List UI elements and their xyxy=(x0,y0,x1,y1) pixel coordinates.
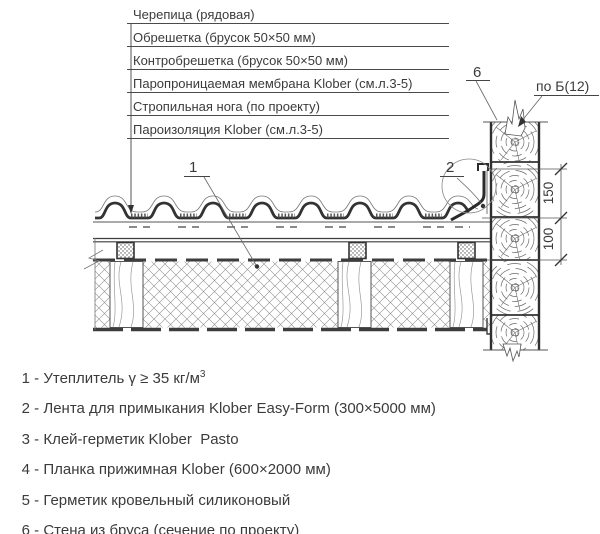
dimension-150: 150 xyxy=(541,182,556,205)
callout-2-label: 2 xyxy=(446,159,454,176)
roof-section xyxy=(84,196,492,334)
arrow-down-icon xyxy=(128,205,134,214)
layer-label-rafter: Стропильная нога (по проекту) xyxy=(127,99,449,116)
callout-1-insulation: 1 xyxy=(184,159,259,269)
layer-label-membrane: Паропроницаемая мембрана Klober (см.л.3-… xyxy=(127,76,449,93)
wall-break-mark-bottom xyxy=(503,344,521,361)
legend-item-6: 6 - Стена из бруса (сечение по проекту) xyxy=(5,504,299,534)
technical-drawing-page: 1 2 6 по Б(12) xyxy=(0,0,600,534)
callout-6-label: 6 xyxy=(473,64,481,81)
leader-dot xyxy=(481,204,485,208)
counter-batten-blocks xyxy=(117,243,475,259)
legend-item-1-sup: 3 xyxy=(200,369,206,380)
tile-upper-contour xyxy=(95,196,478,212)
layer-label-tiles: Черепица (рядовая) xyxy=(127,7,449,24)
log-wall xyxy=(483,100,548,361)
callout-section-view: по Б(12) xyxy=(518,78,599,127)
rafter xyxy=(450,262,483,328)
leader-dot xyxy=(255,264,259,268)
callout-6-wall: 6 xyxy=(466,64,497,120)
layer-label-battens: Обрешетка (брусок 50×50 мм) xyxy=(127,30,449,47)
section-view-label: по Б(12) xyxy=(536,78,589,94)
callout-1-label: 1 xyxy=(189,159,197,176)
legend-item-6-text: 6 - Стена из бруса (сечение по проекту) xyxy=(22,522,300,534)
rafter xyxy=(110,262,143,328)
layer-label-counter-battens: Контробрешетка (брусок 50×50 мм) xyxy=(127,53,449,70)
rafter xyxy=(338,262,371,328)
insulation-hatch xyxy=(95,262,490,328)
layer-label-vapour-barrier: Пароизоляция Klober (см.л.3-5) xyxy=(127,122,449,139)
dimension-100: 100 xyxy=(541,228,556,251)
